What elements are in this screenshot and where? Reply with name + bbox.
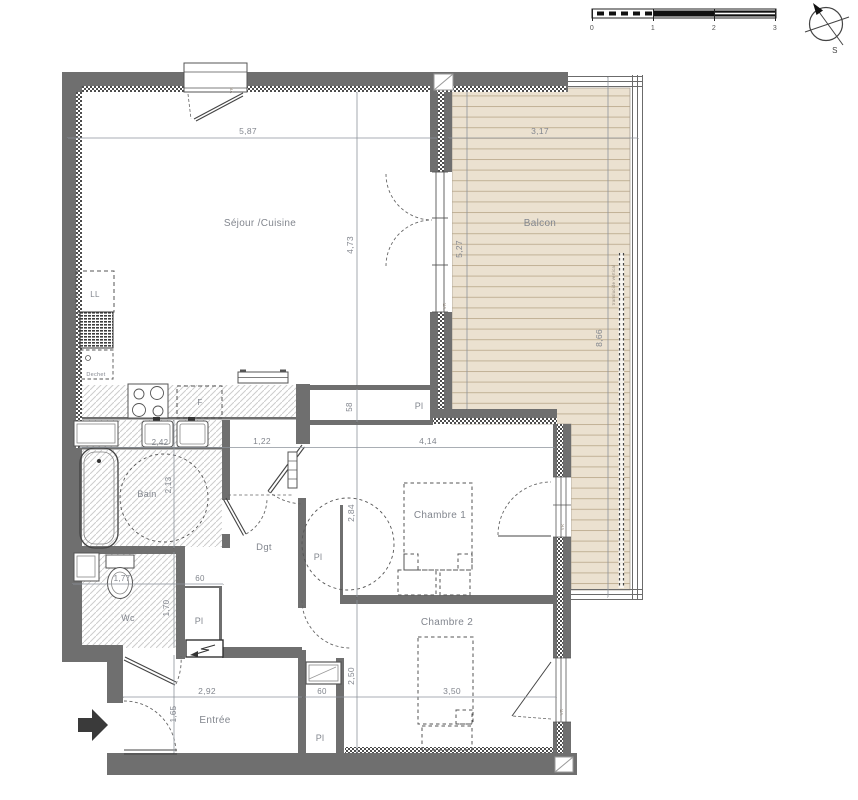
closet-label-entree: Pl	[316, 733, 325, 743]
towel-radiator-icon	[288, 452, 297, 488]
bain-door	[224, 495, 294, 536]
chambre1-window: VR	[498, 477, 571, 537]
dim-wc-closet: 60	[195, 574, 205, 583]
entrance-door	[107, 701, 177, 754]
closet-label-chambre1: Pl	[314, 552, 323, 562]
scale-bar: 0 1 2 3	[590, 9, 777, 32]
kitchen: LL Dechet F	[74, 271, 288, 447]
sejour-north-window: VR	[184, 63, 247, 121]
chambre2-window: VR	[512, 658, 571, 722]
roller-shutter-label: VR	[442, 303, 447, 309]
dim-chambre2-height: 2,50	[346, 667, 356, 685]
kitchen-window	[74, 421, 118, 446]
scale-tick-2: 2	[712, 25, 716, 32]
compass-south-label: S	[832, 46, 838, 55]
dim-balcon-length: 8,66	[594, 329, 604, 347]
dim-entree-width: 2,92	[198, 686, 216, 696]
balcony-deck: translucide vertical	[452, 75, 643, 600]
closet-label-wc: Pl	[195, 616, 204, 626]
sejour-balcony-french-door: VR	[386, 172, 452, 312]
room-label-bain: Bain	[137, 489, 156, 499]
roller-shutter-label: VR	[229, 87, 234, 93]
dim-wc-width: 1,77	[114, 574, 131, 583]
closet-label-hall: Pl	[415, 401, 424, 411]
scale-tick-0: 0	[590, 25, 594, 32]
scale-tick-1: 1	[651, 25, 655, 32]
entree-radiator-icon	[306, 662, 341, 684]
dim-bain-width: 2,42	[152, 438, 169, 447]
sejour-radiator-icon	[238, 370, 288, 384]
room-label-sejour: Séjour /Cuisine	[224, 218, 296, 229]
chambre1-door	[268, 445, 305, 504]
dim-balcon-height: 5,27	[454, 240, 464, 258]
chambre2-door	[302, 600, 350, 648]
washer-label: LL	[90, 290, 100, 299]
dim-sejour-height: 4,73	[345, 236, 355, 254]
compass-icon: S	[805, 3, 849, 55]
dim-entree-closet: 60	[317, 687, 327, 696]
dim-hall-closet: 58	[345, 402, 354, 412]
room-label-wc: Wc	[121, 613, 135, 623]
water-heater-icon	[80, 312, 113, 348]
floor-plan-drawing: translucide vertical	[0, 0, 858, 800]
waste-label: Dechet	[86, 372, 105, 378]
dim-dgt-width: 1,22	[253, 436, 271, 446]
room-label-dgt: Dgt	[256, 542, 272, 553]
stove-icon	[128, 384, 168, 418]
scale-tick-3: 3	[773, 25, 777, 32]
room-label-chambre1: Chambre 1	[414, 510, 466, 521]
dim-chambre1-height: 2,84	[346, 504, 356, 522]
dim-balcon-width: 3,17	[531, 126, 549, 136]
waste-bin: Dechet	[80, 350, 113, 379]
roller-shutter-label: VR	[560, 524, 565, 530]
dim-wc-height: 1,70	[162, 599, 171, 616]
dim-bain-height: 2,13	[164, 476, 173, 493]
dim-chambre1-width: 4,14	[419, 436, 437, 446]
floor-plan-page: translucide vertical	[0, 0, 858, 800]
dim-entree-height: 1,65	[169, 705, 178, 722]
room-label-balcon: Balcon	[524, 218, 556, 229]
entry-arrow-icon	[78, 709, 108, 741]
fridge-label: F	[197, 398, 202, 407]
wc-door	[124, 656, 181, 685]
room-label-entree: Entrée	[199, 715, 230, 726]
electrical-panel-icon	[186, 640, 223, 657]
dim-chambre2-width: 3,50	[443, 686, 461, 696]
dim-sejour-width: 5,87	[239, 126, 257, 136]
room-label-chambre2: Chambre 2	[421, 617, 473, 628]
chambre1-furniture	[398, 483, 472, 595]
balcony-screen-label: translucide vertical	[611, 265, 616, 306]
hand-basin-icon	[74, 553, 99, 581]
roller-shutter-label: VR	[559, 709, 564, 715]
